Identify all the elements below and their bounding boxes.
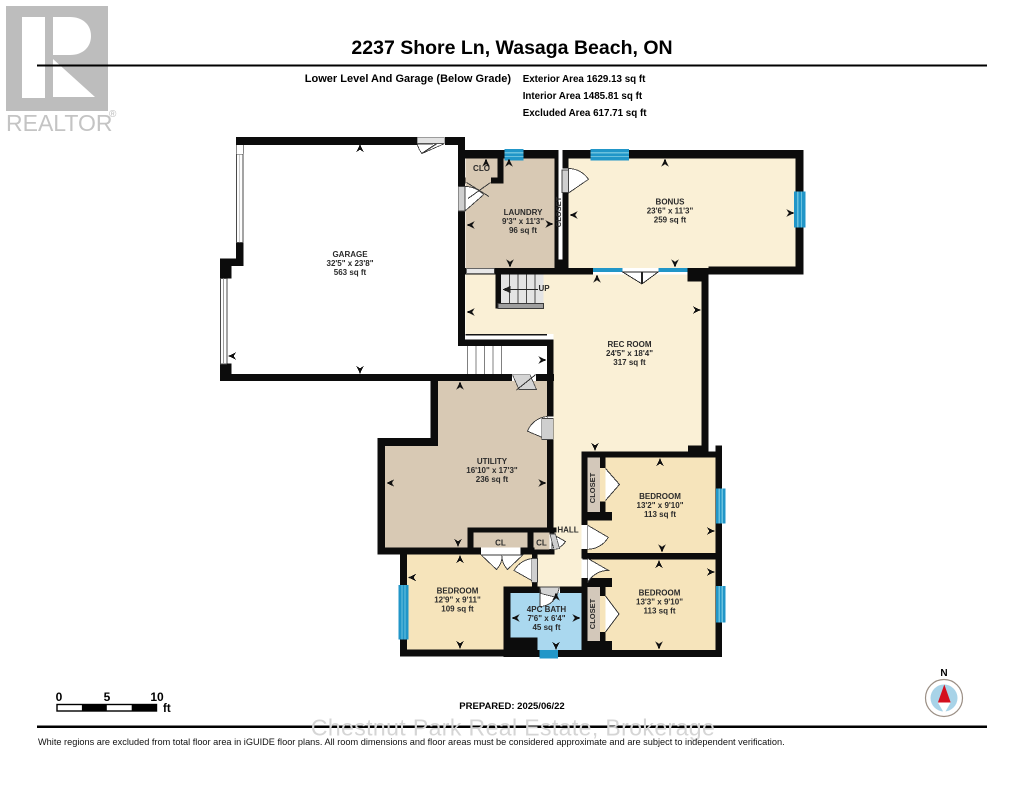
svg-text:Exterior Area 1629.13 sq ft: Exterior Area 1629.13 sq ft [523, 74, 646, 85]
svg-text:BEDROOM: BEDROOM [639, 492, 681, 501]
svg-text:32'5" x 23'8": 32'5" x 23'8" [327, 259, 374, 268]
svg-text:259 sq ft: 259 sq ft [654, 215, 687, 224]
svg-text:CL: CL [536, 539, 547, 548]
svg-text:13'2" x 9'10": 13'2" x 9'10" [637, 501, 684, 510]
svg-text:113 sq ft: 113 sq ft [644, 510, 676, 519]
svg-text:BEDROOM: BEDROOM [437, 587, 479, 596]
svg-text:Excluded Area 617.71 sq ft: Excluded Area 617.71 sq ft [523, 108, 648, 119]
svg-text:13'3" x 9'10": 13'3" x 9'10" [636, 598, 683, 607]
svg-text:96 sq ft: 96 sq ft [509, 226, 537, 235]
svg-text:236 sq ft: 236 sq ft [476, 475, 509, 484]
svg-text:ft: ft [163, 703, 171, 715]
svg-text:CLOSET: CLOSET [588, 472, 597, 503]
svg-text:HALL: HALL [557, 526, 578, 535]
svg-text:45 sq ft: 45 sq ft [532, 623, 560, 632]
svg-text:Lower Level And Garage (Below: Lower Level And Garage (Below Grade) [305, 73, 512, 85]
svg-text:16'10" x 17'3": 16'10" x 17'3" [466, 466, 518, 475]
svg-text:CLOSET: CLOSET [588, 598, 597, 629]
svg-text:PREPARED: 2025/06/22: PREPARED: 2025/06/22 [459, 701, 564, 712]
svg-text:N: N [940, 668, 947, 679]
svg-text:2237 Shore Ln, Wasaga Beach, O: 2237 Shore Ln, Wasaga Beach, ON [351, 37, 672, 59]
svg-text:317 sq ft: 317 sq ft [613, 358, 646, 367]
svg-text:BEDROOM: BEDROOM [639, 589, 681, 598]
svg-text:24'5" x 18'4": 24'5" x 18'4" [606, 349, 653, 358]
svg-text:9'3" x 11'3": 9'3" x 11'3" [502, 217, 544, 226]
svg-text:REC ROOM: REC ROOM [608, 340, 652, 349]
svg-text:GARAGE: GARAGE [332, 250, 368, 259]
svg-text:113 sq ft: 113 sq ft [643, 606, 675, 615]
svg-text:CLO: CLO [473, 164, 490, 173]
svg-text:UTILITY: UTILITY [477, 457, 508, 466]
svg-text:109 sq ft: 109 sq ft [441, 604, 474, 613]
svg-text:0: 0 [56, 690, 63, 704]
svg-text:10: 10 [150, 690, 164, 704]
svg-text:White regions are excluded fro: White regions are excluded from total fl… [38, 737, 785, 747]
svg-text:LAUNDRY: LAUNDRY [504, 208, 543, 217]
svg-text:REALTOR: REALTOR [6, 110, 113, 136]
svg-text:CL: CL [495, 539, 506, 548]
svg-text:4PC BATH: 4PC BATH [527, 605, 567, 614]
svg-text:Interior Area 1485.81 sq ft: Interior Area 1485.81 sq ft [523, 91, 643, 102]
svg-text:7'6" x 6'4": 7'6" x 6'4" [527, 614, 565, 623]
svg-text:CLOSET: CLOSET [554, 196, 563, 227]
svg-text:®: ® [109, 109, 117, 120]
svg-text:5: 5 [104, 690, 111, 704]
svg-text:23'6" x 11'3": 23'6" x 11'3" [647, 207, 694, 216]
svg-text:UP: UP [538, 284, 550, 293]
svg-text:BONUS: BONUS [656, 198, 686, 207]
svg-text:12'9" x 9'11": 12'9" x 9'11" [434, 596, 481, 605]
svg-text:563 sq ft: 563 sq ft [334, 268, 367, 277]
